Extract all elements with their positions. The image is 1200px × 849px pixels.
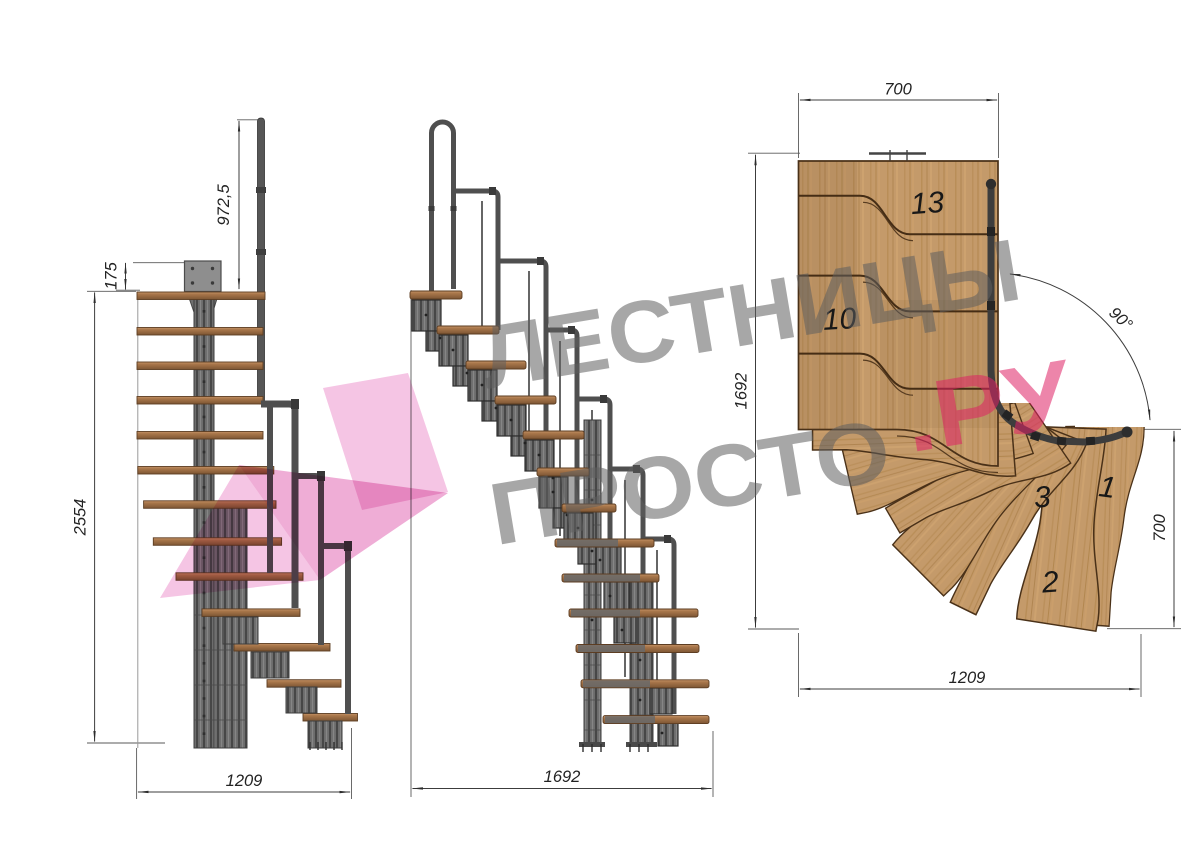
svg-text:1692: 1692 — [544, 768, 581, 786]
svg-text:700: 700 — [1151, 513, 1169, 541]
svg-text:1209: 1209 — [949, 669, 986, 687]
svg-text:2554: 2554 — [72, 499, 90, 537]
svg-text:700: 700 — [884, 81, 912, 99]
svg-text:13: 13 — [910, 186, 946, 221]
svg-text:175: 175 — [103, 261, 121, 289]
svg-text:2: 2 — [1040, 565, 1060, 599]
svg-text:972,5: 972,5 — [215, 184, 233, 226]
svg-text:1692: 1692 — [733, 373, 751, 410]
svg-text:3: 3 — [1033, 480, 1052, 514]
svg-text:1209: 1209 — [226, 772, 263, 790]
